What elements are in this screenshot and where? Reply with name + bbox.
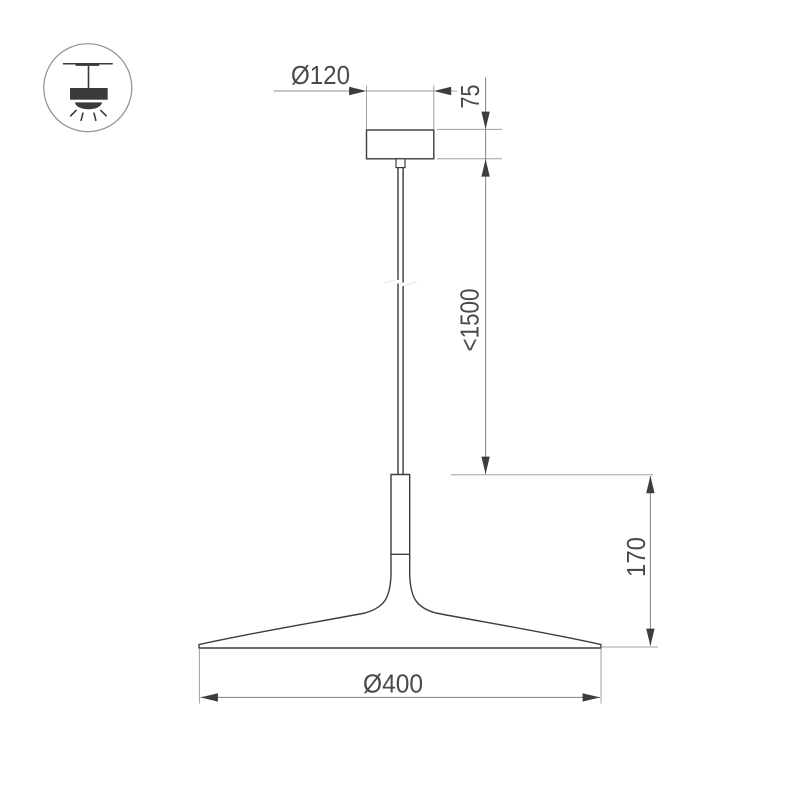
svg-text:<1500: <1500: [457, 289, 485, 352]
svg-text:75: 75: [457, 85, 485, 109]
svg-text:170: 170: [623, 537, 651, 577]
svg-text:Ø120: Ø120: [291, 62, 350, 90]
svg-text:Ø400: Ø400: [363, 671, 423, 699]
